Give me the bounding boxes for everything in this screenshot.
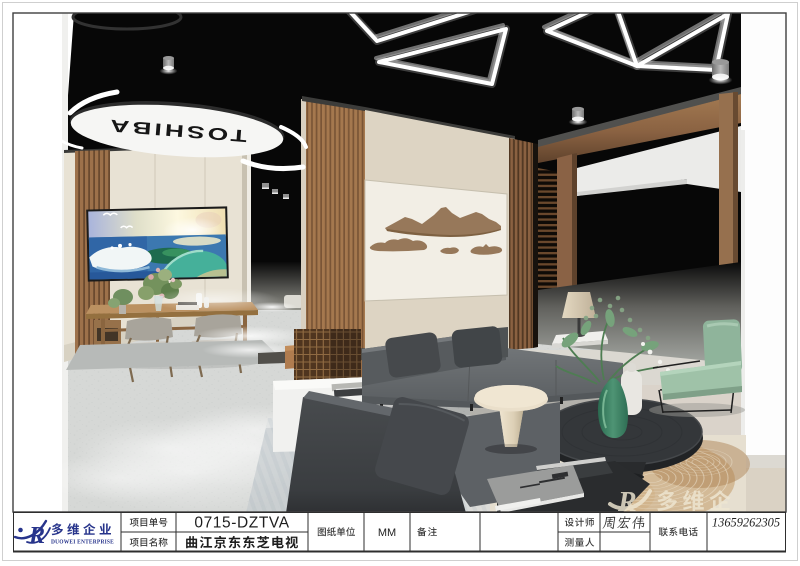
svg-text:0715-DZTVA: 0715-DZTVA	[194, 515, 289, 532]
svg-text:R: R	[28, 523, 45, 549]
svg-text:DUOWEI ENTERPRISE: DUOWEI ENTERPRISE	[51, 540, 114, 546]
svg-text:13659262305: 13659262305	[712, 516, 780, 530]
svg-text:MM: MM	[378, 527, 396, 539]
